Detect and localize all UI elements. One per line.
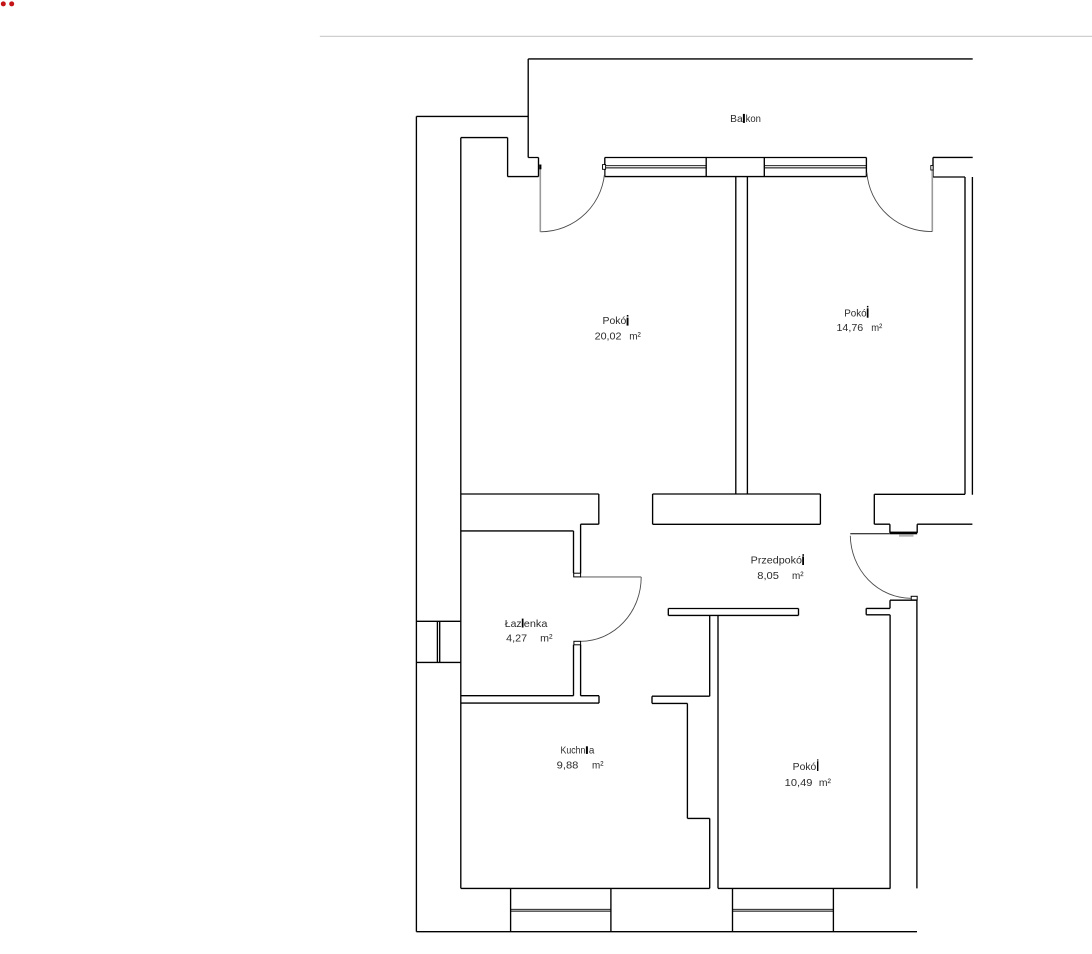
svg-text:Łaz: Łaz (505, 619, 522, 630)
svg-text:Ba: Ba (730, 114, 743, 125)
svg-text:kon: kon (746, 114, 761, 125)
svg-text:Pokó: Pokó (844, 308, 867, 319)
svg-text:Pokó: Pokó (603, 316, 627, 327)
svg-text:m²: m² (819, 778, 832, 789)
svg-text:9,88: 9,88 (557, 760, 579, 771)
svg-text:8,05: 8,05 (757, 571, 779, 582)
svg-text:m²: m² (592, 760, 604, 771)
svg-text:a: a (589, 746, 595, 757)
svg-text:10,49: 10,49 (785, 778, 813, 789)
svg-text:4,27: 4,27 (506, 634, 527, 645)
svg-text:Pokó: Pokó (793, 762, 817, 773)
svg-text:m²: m² (792, 571, 804, 582)
svg-text:Przedpokó: Przedpokó (751, 555, 803, 566)
svg-text:m²: m² (871, 323, 883, 334)
svg-text:20,02: 20,02 (595, 332, 622, 343)
svg-text:14,76: 14,76 (837, 323, 864, 334)
svg-text:enka: enka (524, 619, 548, 630)
svg-text:m²: m² (629, 332, 641, 343)
svg-text:m²: m² (540, 634, 553, 645)
svg-text:Kuchn: Kuchn (561, 746, 586, 757)
